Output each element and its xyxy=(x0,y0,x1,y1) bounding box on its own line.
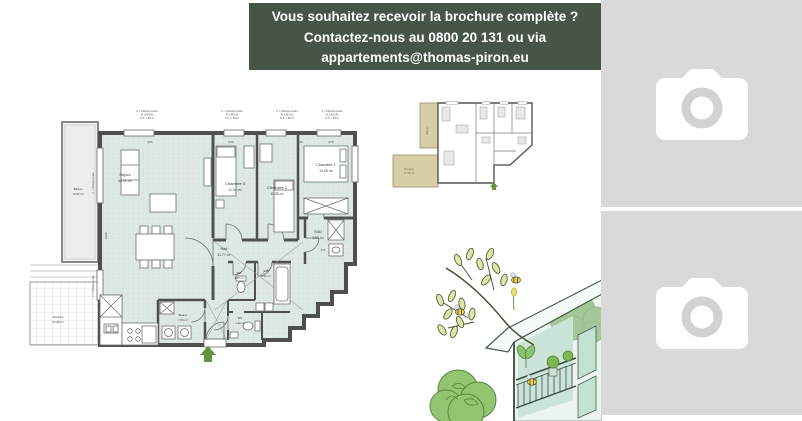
banner-line-3: appartements@thomas-piron.eu xyxy=(249,48,601,69)
svg-text:37.08 m²: 37.08 m² xyxy=(52,320,63,324)
brochure-banner: Vous souhaitez recevoir la brochure comp… xyxy=(249,3,601,70)
svg-text:1008: 1008 xyxy=(104,232,108,239)
svg-text:H.A. = 85cm: H.A. = 85cm xyxy=(325,117,339,120)
svg-text:H.A. = 85cm: H.A. = 85cm xyxy=(280,117,294,120)
camera-icon xyxy=(652,273,752,353)
floorplan-thumbnail-image[interactable]: Terrasse 37.08 m² Balcon xyxy=(390,95,548,193)
svg-text:1.83 m²: 1.83 m² xyxy=(234,276,244,280)
room-label-sejour: Séjour xyxy=(119,172,131,177)
room-label-balcon: Balcon xyxy=(74,187,83,191)
room-label-terrasse: Terrasse xyxy=(53,315,64,319)
building xyxy=(486,280,602,421)
svg-text:11.34 m²: 11.34 m² xyxy=(228,188,242,192)
room-label-wc1: WC xyxy=(237,271,242,275)
svg-text:H.A. = 85cm: H.A. = 85cm xyxy=(140,117,154,120)
room-label-sdb: SdB xyxy=(263,269,268,273)
svg-text:4.51 m²: 4.51 m² xyxy=(261,274,271,278)
room-label-chambre2: Chambre 2 xyxy=(267,185,288,190)
svg-text:7.64 m²: 7.64 m² xyxy=(178,318,188,322)
banner-line-2: Contactez-nous au 0800 20 131 ou via xyxy=(249,28,601,49)
room-label-chambre3: Chambre 3 xyxy=(225,181,246,186)
flower xyxy=(511,288,516,310)
room-label-sdd: SdD xyxy=(314,229,322,234)
svg-text:13.06 m²: 13.06 m² xyxy=(319,169,333,173)
camera-icon xyxy=(652,64,752,144)
svg-text:C = Châssis isolant: C = Châssis isolant xyxy=(92,172,95,194)
thumb-terrace-label: Terrasse xyxy=(404,167,415,171)
svg-text:13.03 m²: 13.03 m² xyxy=(72,192,83,196)
floorplan-main-image[interactable]: C = Châssis isolant B. 140/235 H.A. = 85… xyxy=(28,88,363,363)
terrace-area xyxy=(30,265,98,345)
svg-text:11.77 m²: 11.77 m² xyxy=(217,253,231,257)
room-label-buand: Buand. xyxy=(179,313,188,317)
svg-text:171: 171 xyxy=(320,248,325,252)
svg-text:11.35 m²: 11.35 m² xyxy=(270,192,284,196)
photo-placeholder-1[interactable] xyxy=(601,0,802,207)
thumb-balcony-label: Balcon xyxy=(425,127,429,135)
thumb-balcony xyxy=(420,103,438,148)
svg-text:278: 278 xyxy=(328,140,333,144)
thumb-terrace xyxy=(393,155,438,187)
svg-text:236: 236 xyxy=(297,140,302,144)
garden-illustration xyxy=(428,240,602,421)
room-label-chambre1: Chambre 1 xyxy=(316,162,337,167)
svg-text:H.A. = 85cm: H.A. = 85cm xyxy=(225,117,239,120)
banner-line-1: Vous souhaitez recevoir la brochure comp… xyxy=(249,7,601,28)
bee-flying-1 xyxy=(511,273,521,283)
bush xyxy=(430,370,496,421)
svg-text:C = Châssis isolant: C = Châssis isolant xyxy=(92,275,95,297)
entrance-arrow xyxy=(200,346,216,362)
svg-text:230: 230 xyxy=(228,140,233,144)
svg-text:445: 445 xyxy=(147,140,152,144)
room-label-hall: Hall xyxy=(221,246,228,251)
room-label-wc2: WC xyxy=(238,316,243,320)
svg-text:40.09 m²: 40.09 m² xyxy=(118,179,132,183)
listing-page: Vous souhaitez recevoir la brochure comp… xyxy=(0,0,802,421)
svg-text:1.42 m²: 1.42 m² xyxy=(235,321,245,325)
photo-placeholder-2[interactable] xyxy=(601,211,802,415)
svg-text:37.08 m²: 37.08 m² xyxy=(404,171,414,175)
svg-text:3.53 m²: 3.53 m² xyxy=(312,236,324,240)
